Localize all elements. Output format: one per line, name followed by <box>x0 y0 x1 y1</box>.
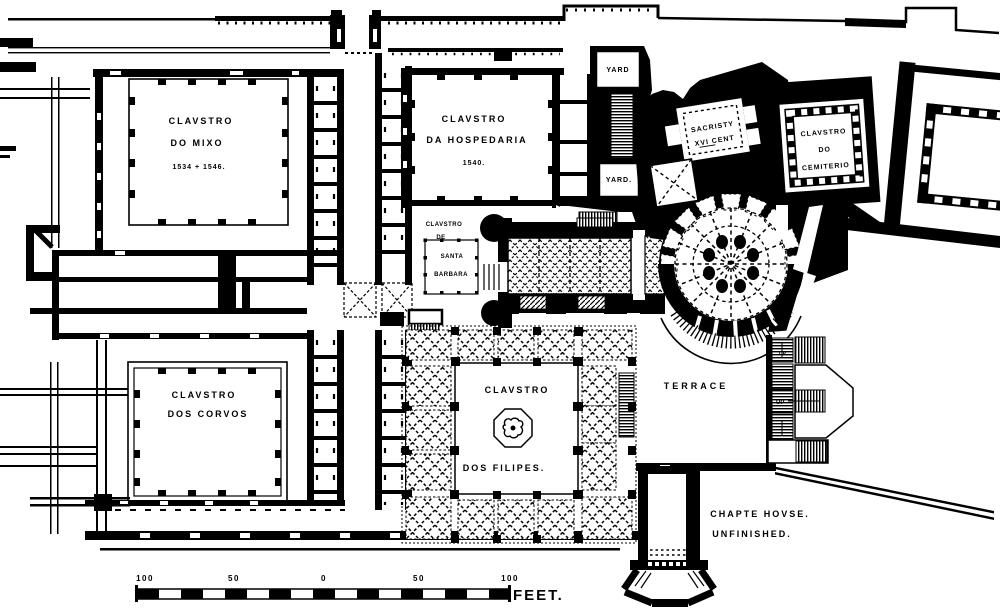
svg-text:YARD: YARD <box>606 67 629 74</box>
svg-text:CLAVSTRO: CLAVSTRO <box>172 390 237 400</box>
svg-text:50: 50 <box>228 574 240 583</box>
svg-text:TERRACE: TERRACE <box>664 381 729 391</box>
svg-text:UP: UP <box>779 351 787 357</box>
svg-text:UNFINISHED.: UNFINISHED. <box>712 529 792 539</box>
svg-text:CLAVSTRO: CLAVSTRO <box>442 114 507 124</box>
svg-text:BARBARA: BARBARA <box>434 272 468 278</box>
svg-text:50: 50 <box>413 574 425 583</box>
svg-text:DOS FILIPES.: DOS FILIPES. <box>463 463 546 473</box>
svg-text:CHAPTE HOVSE.: CHAPTE HOVSE. <box>710 509 810 519</box>
svg-text:DA HOSPEDARIA: DA HOSPEDARIA <box>426 135 527 145</box>
svg-text:SANTA: SANTA <box>441 254 464 260</box>
svg-text:DO: DO <box>818 146 831 154</box>
svg-text:100: 100 <box>501 574 519 583</box>
svg-text:0: 0 <box>321 574 327 583</box>
svg-text:1534 + 1546.: 1534 + 1546. <box>172 164 225 171</box>
svg-text:CLAVSTRO: CLAVSTRO <box>169 116 234 126</box>
svg-text:UP: UP <box>776 400 784 406</box>
svg-text:FEET.: FEET. <box>513 587 564 604</box>
svg-text:100: 100 <box>136 574 154 583</box>
svg-text:DOS CORVOS: DOS CORVOS <box>168 409 249 419</box>
svg-text:CLAVSTRO: CLAVSTRO <box>485 385 550 395</box>
svg-text:DO MIXO: DO MIXO <box>170 138 223 148</box>
svg-text:YARD.: YARD. <box>606 177 632 184</box>
svg-text:1540.: 1540. <box>463 160 486 167</box>
svg-text:CLAVSTRO: CLAVSTRO <box>426 222 463 228</box>
